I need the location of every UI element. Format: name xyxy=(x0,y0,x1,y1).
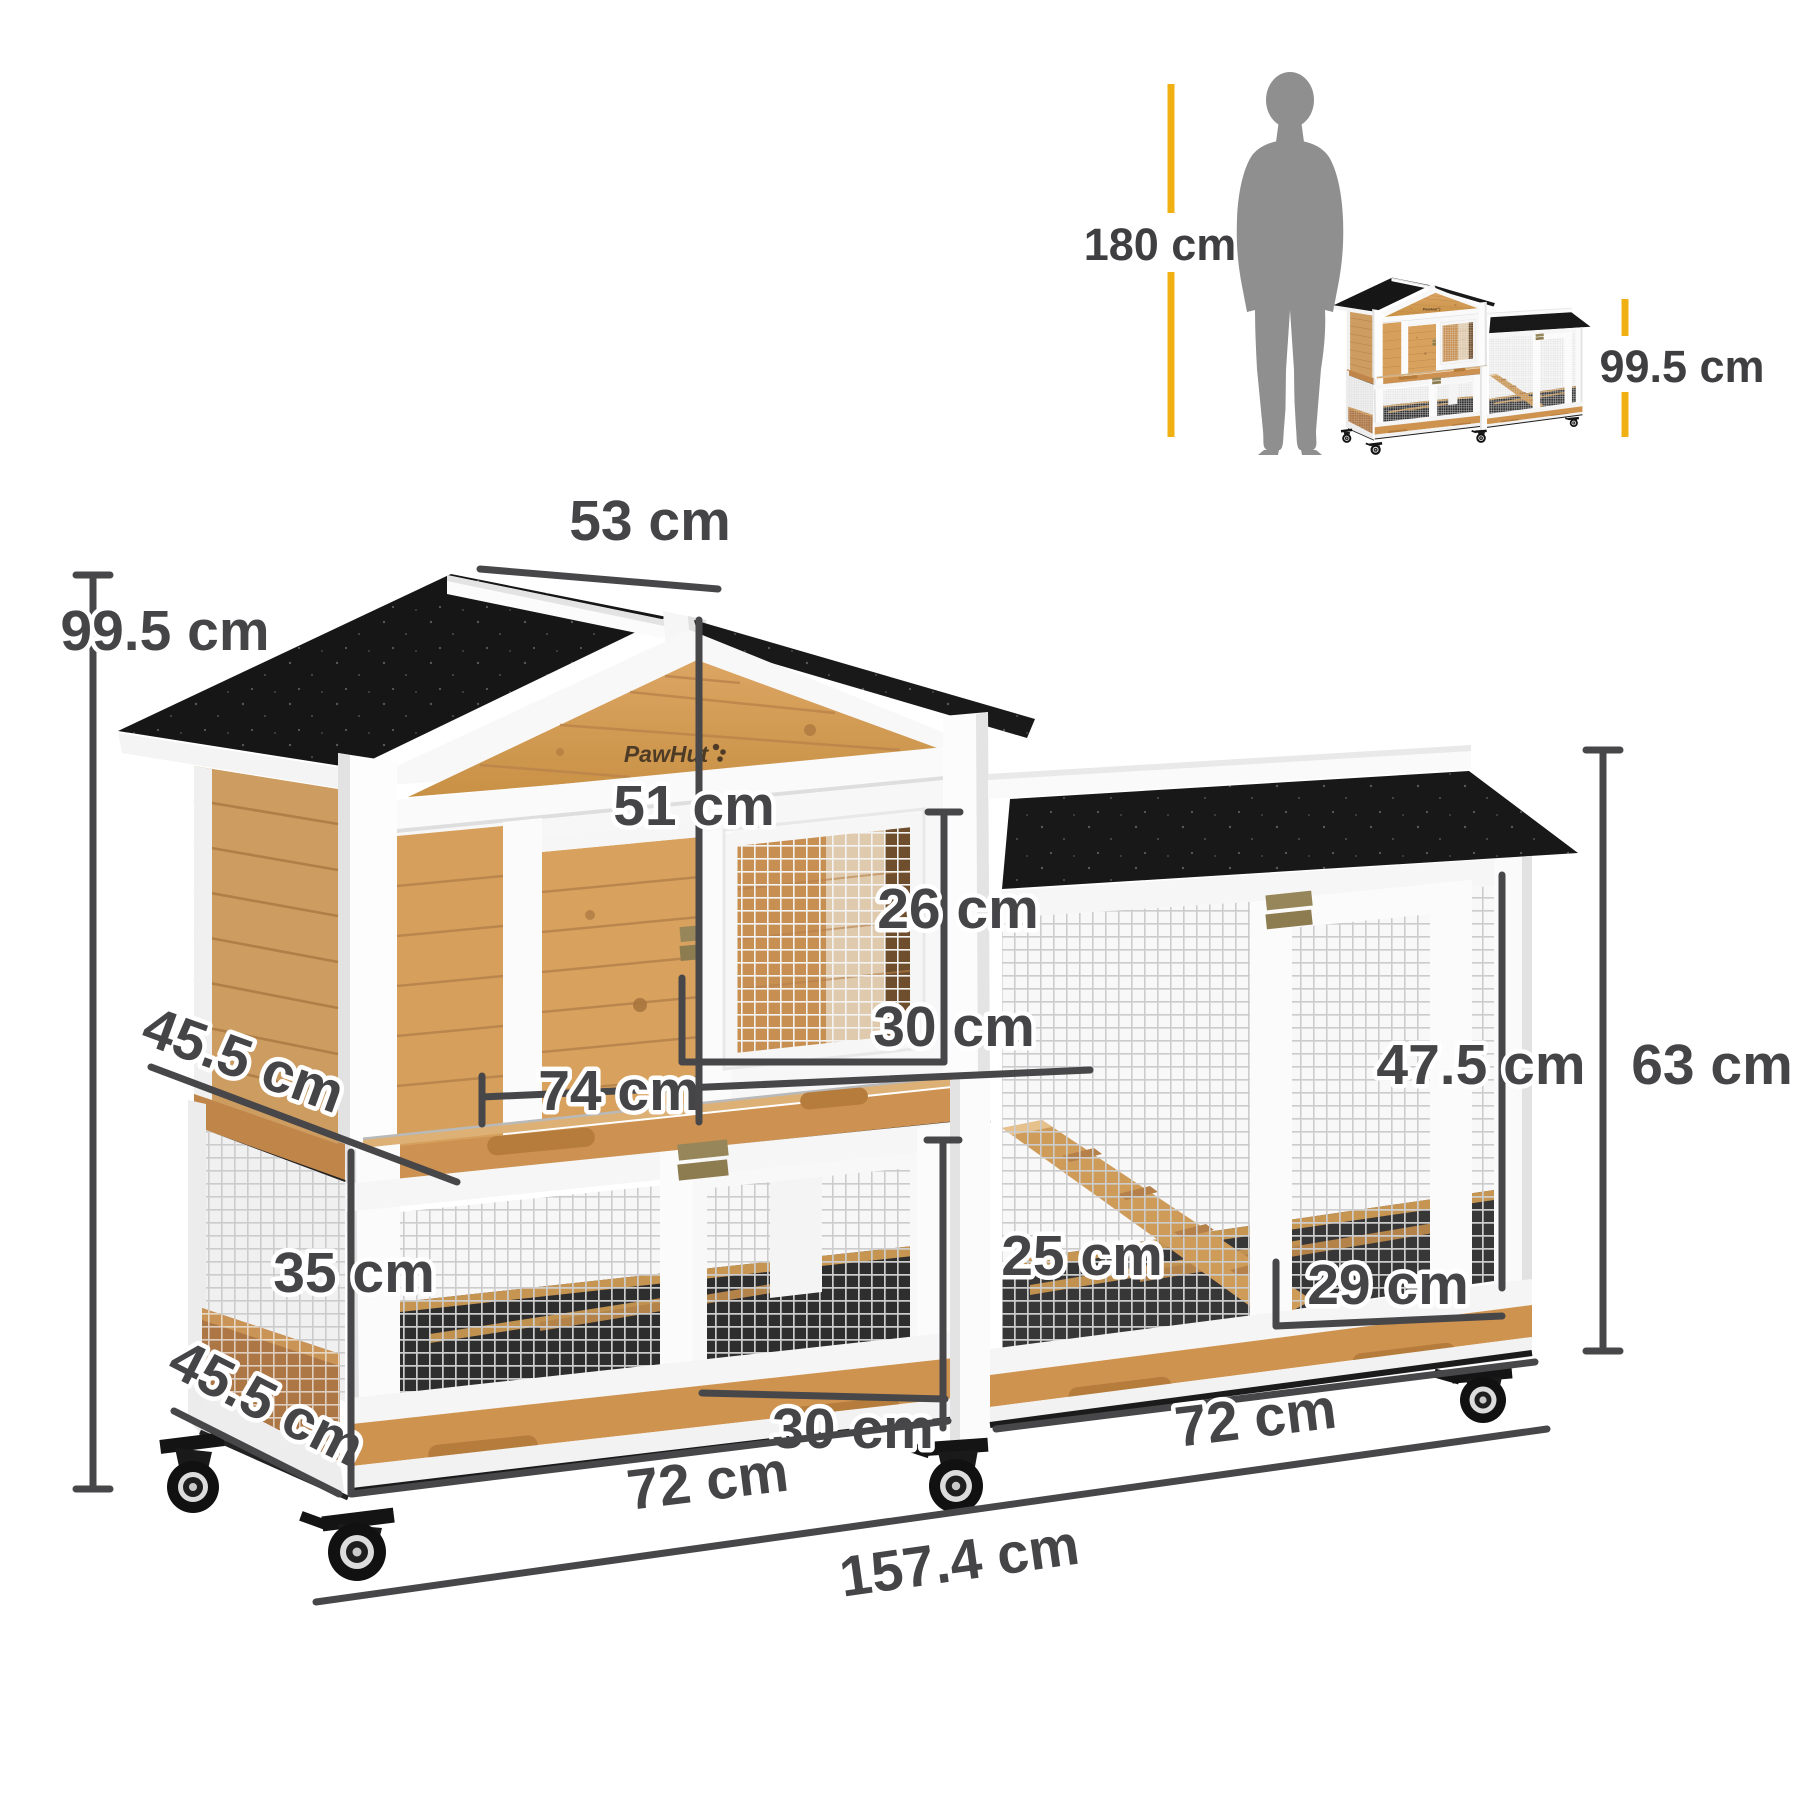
svg-text:26 cm: 26 cm xyxy=(877,877,1039,941)
svg-text:47.5 cm: 47.5 cm xyxy=(1376,1033,1585,1097)
svg-text:99.5 cm: 99.5 cm xyxy=(60,599,269,663)
svg-text:35 cm: 35 cm xyxy=(273,1241,435,1305)
svg-text:63 cm: 63 cm xyxy=(1631,1033,1793,1097)
svg-text:99.5 cm: 99.5 cm xyxy=(1599,341,1764,392)
svg-text:29 cm: 29 cm xyxy=(1307,1253,1469,1317)
svg-text:53 cm: 53 cm xyxy=(569,489,731,553)
svg-text:180 cm: 180 cm xyxy=(1084,219,1237,270)
svg-text:51 cm: 51 cm xyxy=(613,774,775,838)
svg-text:30 cm: 30 cm xyxy=(873,995,1035,1059)
svg-text:74 cm: 74 cm xyxy=(538,1059,700,1123)
svg-text:25 cm: 25 cm xyxy=(1001,1224,1163,1288)
